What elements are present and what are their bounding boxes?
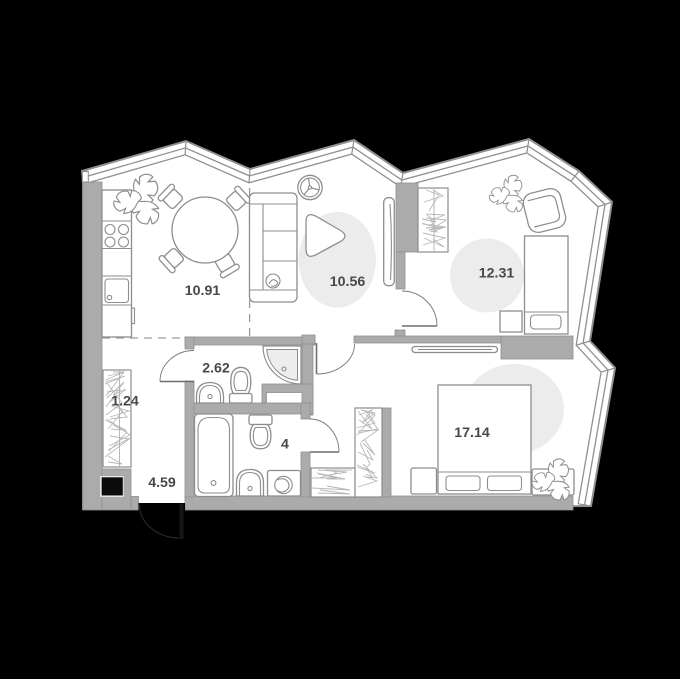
svg-text:4: 4 <box>281 437 289 453</box>
svg-text:2.62: 2.62 <box>202 361 230 377</box>
svg-text:10.91: 10.91 <box>185 283 221 299</box>
svg-text:1.24: 1.24 <box>111 394 139 410</box>
svg-text:17.14: 17.14 <box>454 425 490 441</box>
svg-text:10.56: 10.56 <box>330 274 366 290</box>
svg-text:12.31: 12.31 <box>479 266 515 282</box>
svg-text:4.59: 4.59 <box>148 475 176 491</box>
